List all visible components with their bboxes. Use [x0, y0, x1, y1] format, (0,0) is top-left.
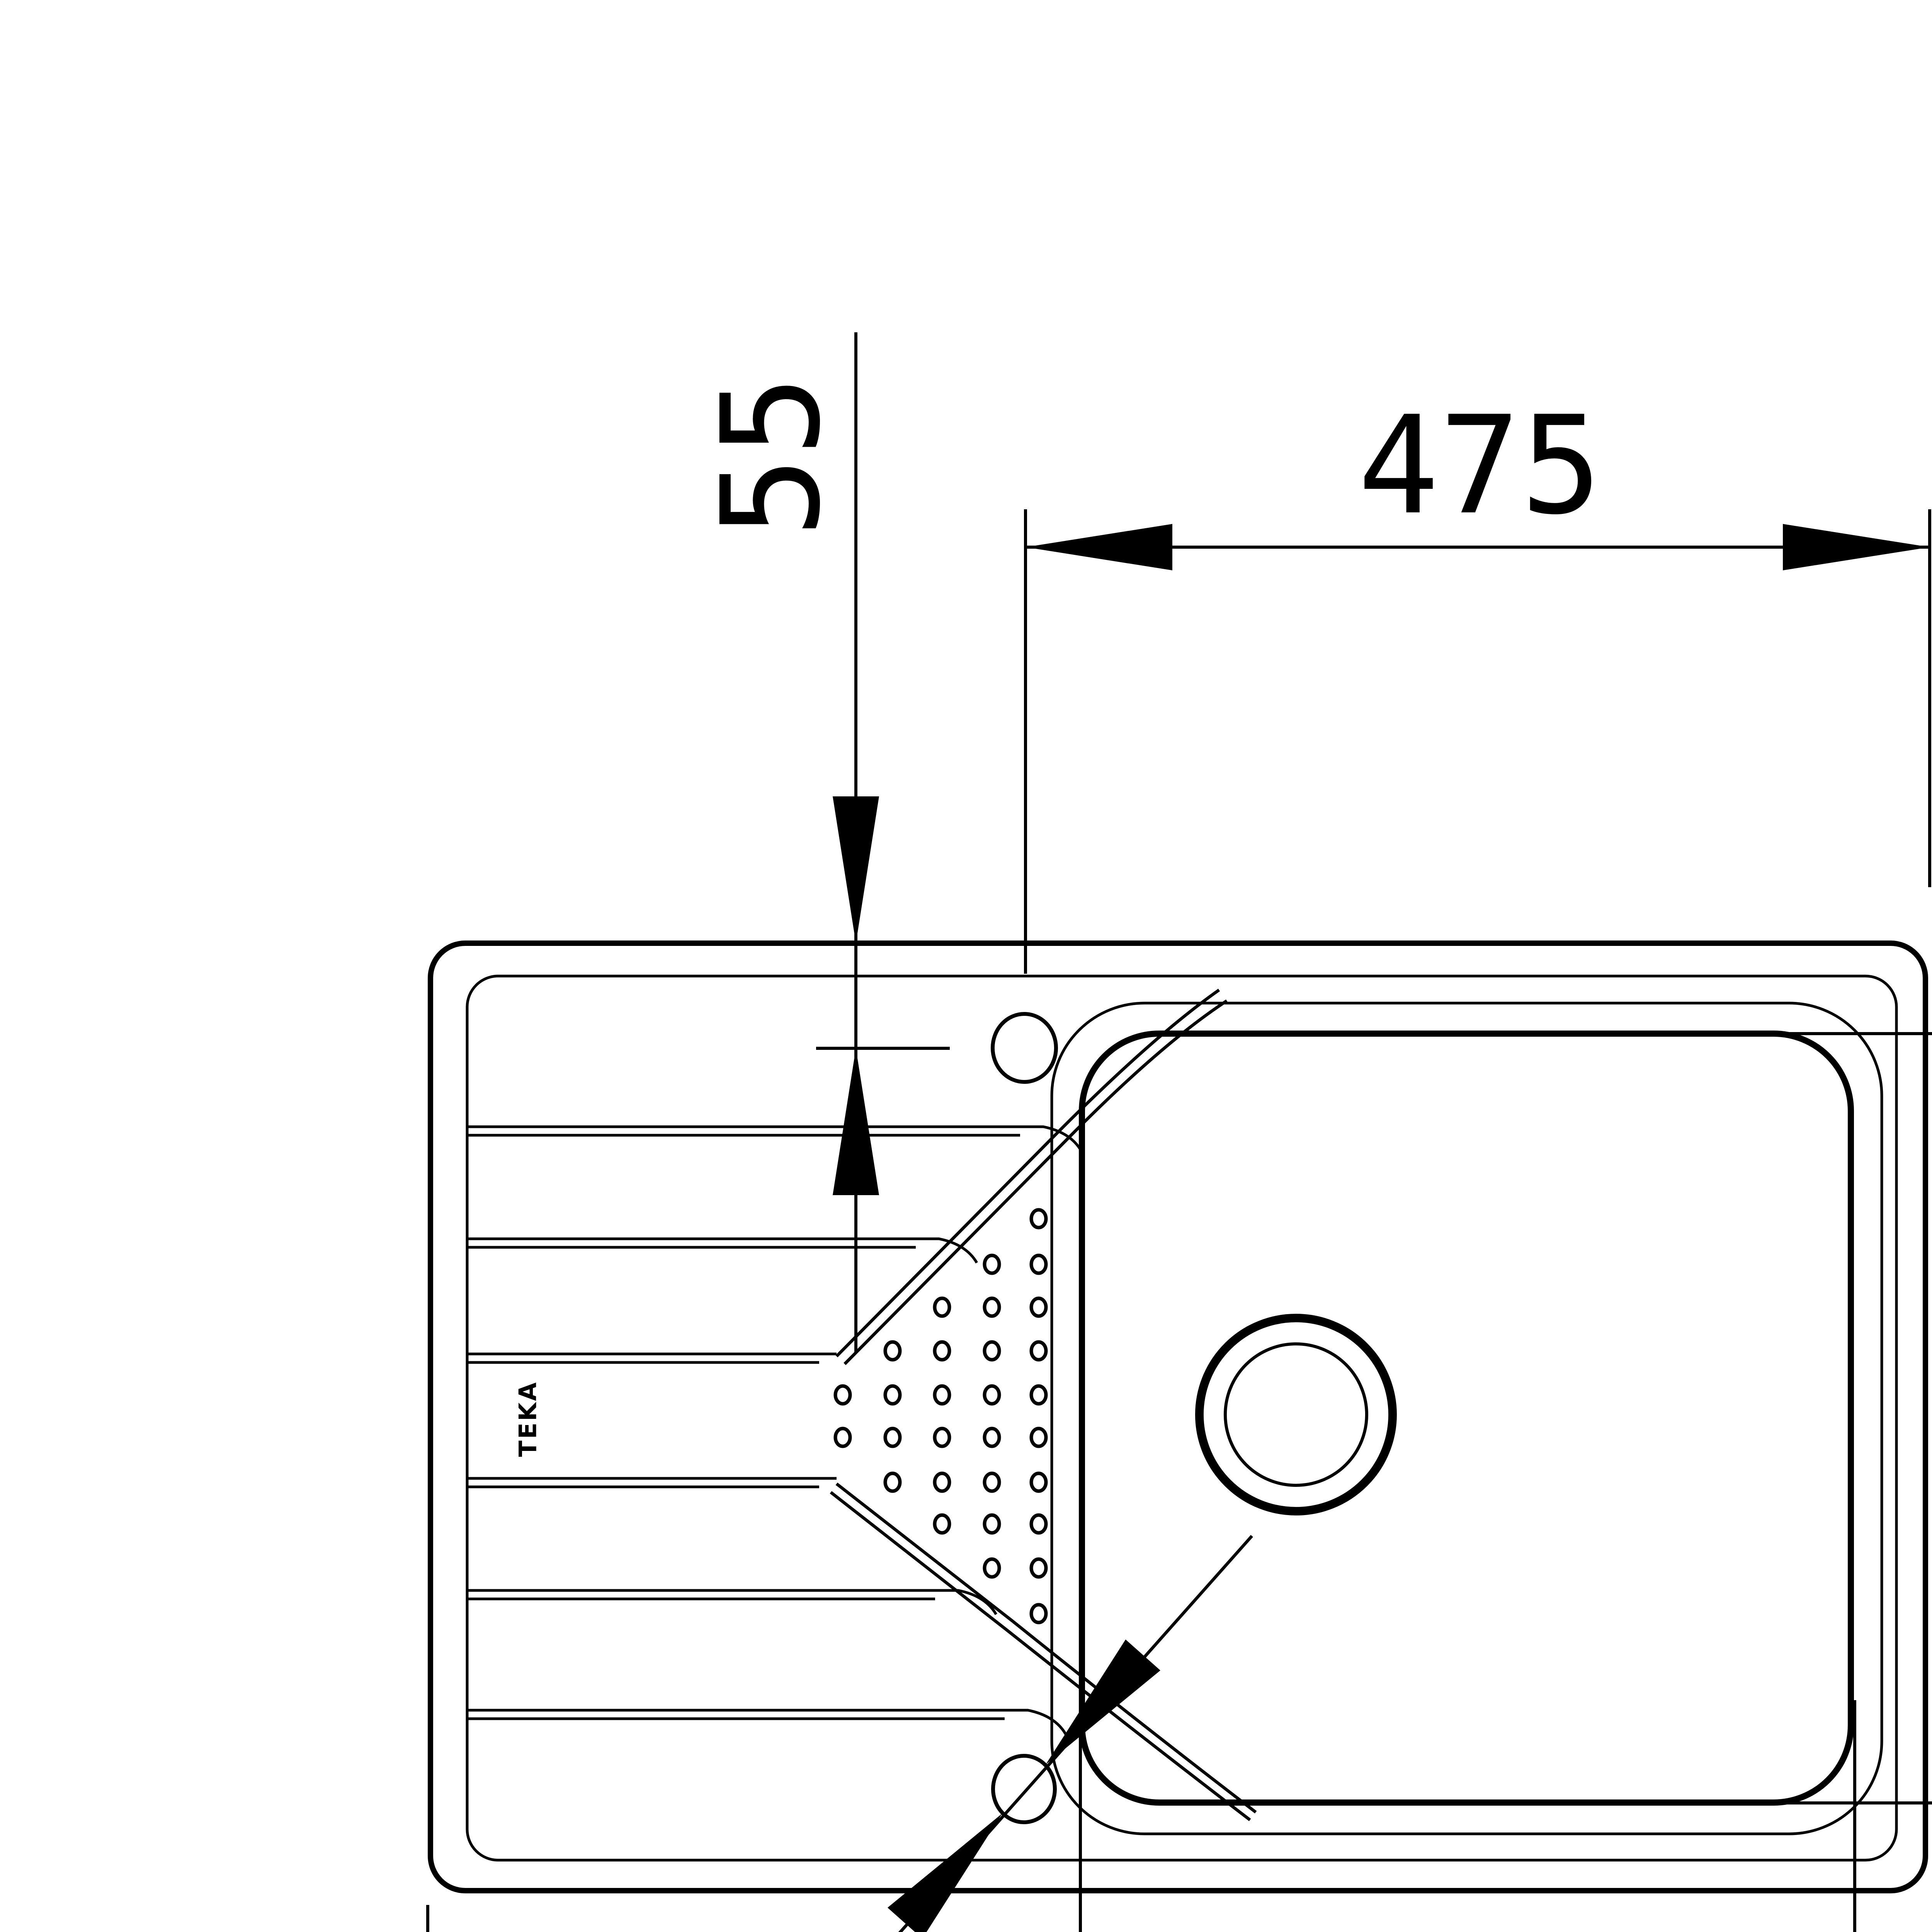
dimension-406-right: 406	[1182, 1034, 1932, 1806]
dimension-406-bottom: 406	[1080, 1484, 1855, 1932]
bowl-outer-rim	[1052, 1003, 1882, 1834]
arrowhead-down	[833, 796, 879, 943]
funnel-lower-edge	[831, 1492, 1250, 1820]
funnel-upper-edge	[837, 990, 1219, 1356]
groove-line	[467, 1710, 1066, 1734]
arrowhead-lower	[888, 1813, 1002, 1932]
arrowhead-up	[833, 1048, 879, 1195]
waste-hole	[993, 1756, 1055, 1822]
tap-hole	[993, 1014, 1056, 1082]
arrowhead-right	[1783, 524, 1930, 570]
dimension-475-top: 475	[1026, 387, 1930, 974]
sink-outline	[430, 943, 1925, 1891]
drain-circle	[1199, 1318, 1393, 1511]
brand-logo: TEKA	[514, 1381, 542, 1457]
sink-technical-drawing: TEKA 475 55 406 500	[0, 0, 1932, 1932]
funnel-upper-edge	[845, 1001, 1227, 1364]
groove-line	[467, 1239, 977, 1263]
funnel-lower-edge	[837, 1484, 1256, 1812]
sink-inner-rim	[467, 976, 1896, 1860]
sink-outer-edge	[430, 943, 1925, 1891]
dimension-diameter-35: Ø35	[517, 1536, 1252, 1932]
groove-line	[467, 1590, 996, 1614]
arrowhead-left	[1026, 524, 1172, 570]
groove-line	[467, 1127, 1081, 1151]
perforation-dots	[835, 1210, 1046, 1622]
dim-label-55: 55	[692, 375, 850, 537]
dimension-790-bottom: 790	[428, 1905, 1932, 1932]
arrowhead-upper	[1046, 1639, 1160, 1765]
dimension-55-top-left: 55	[692, 332, 950, 1352]
dim-label-475: 475	[1358, 387, 1602, 544]
